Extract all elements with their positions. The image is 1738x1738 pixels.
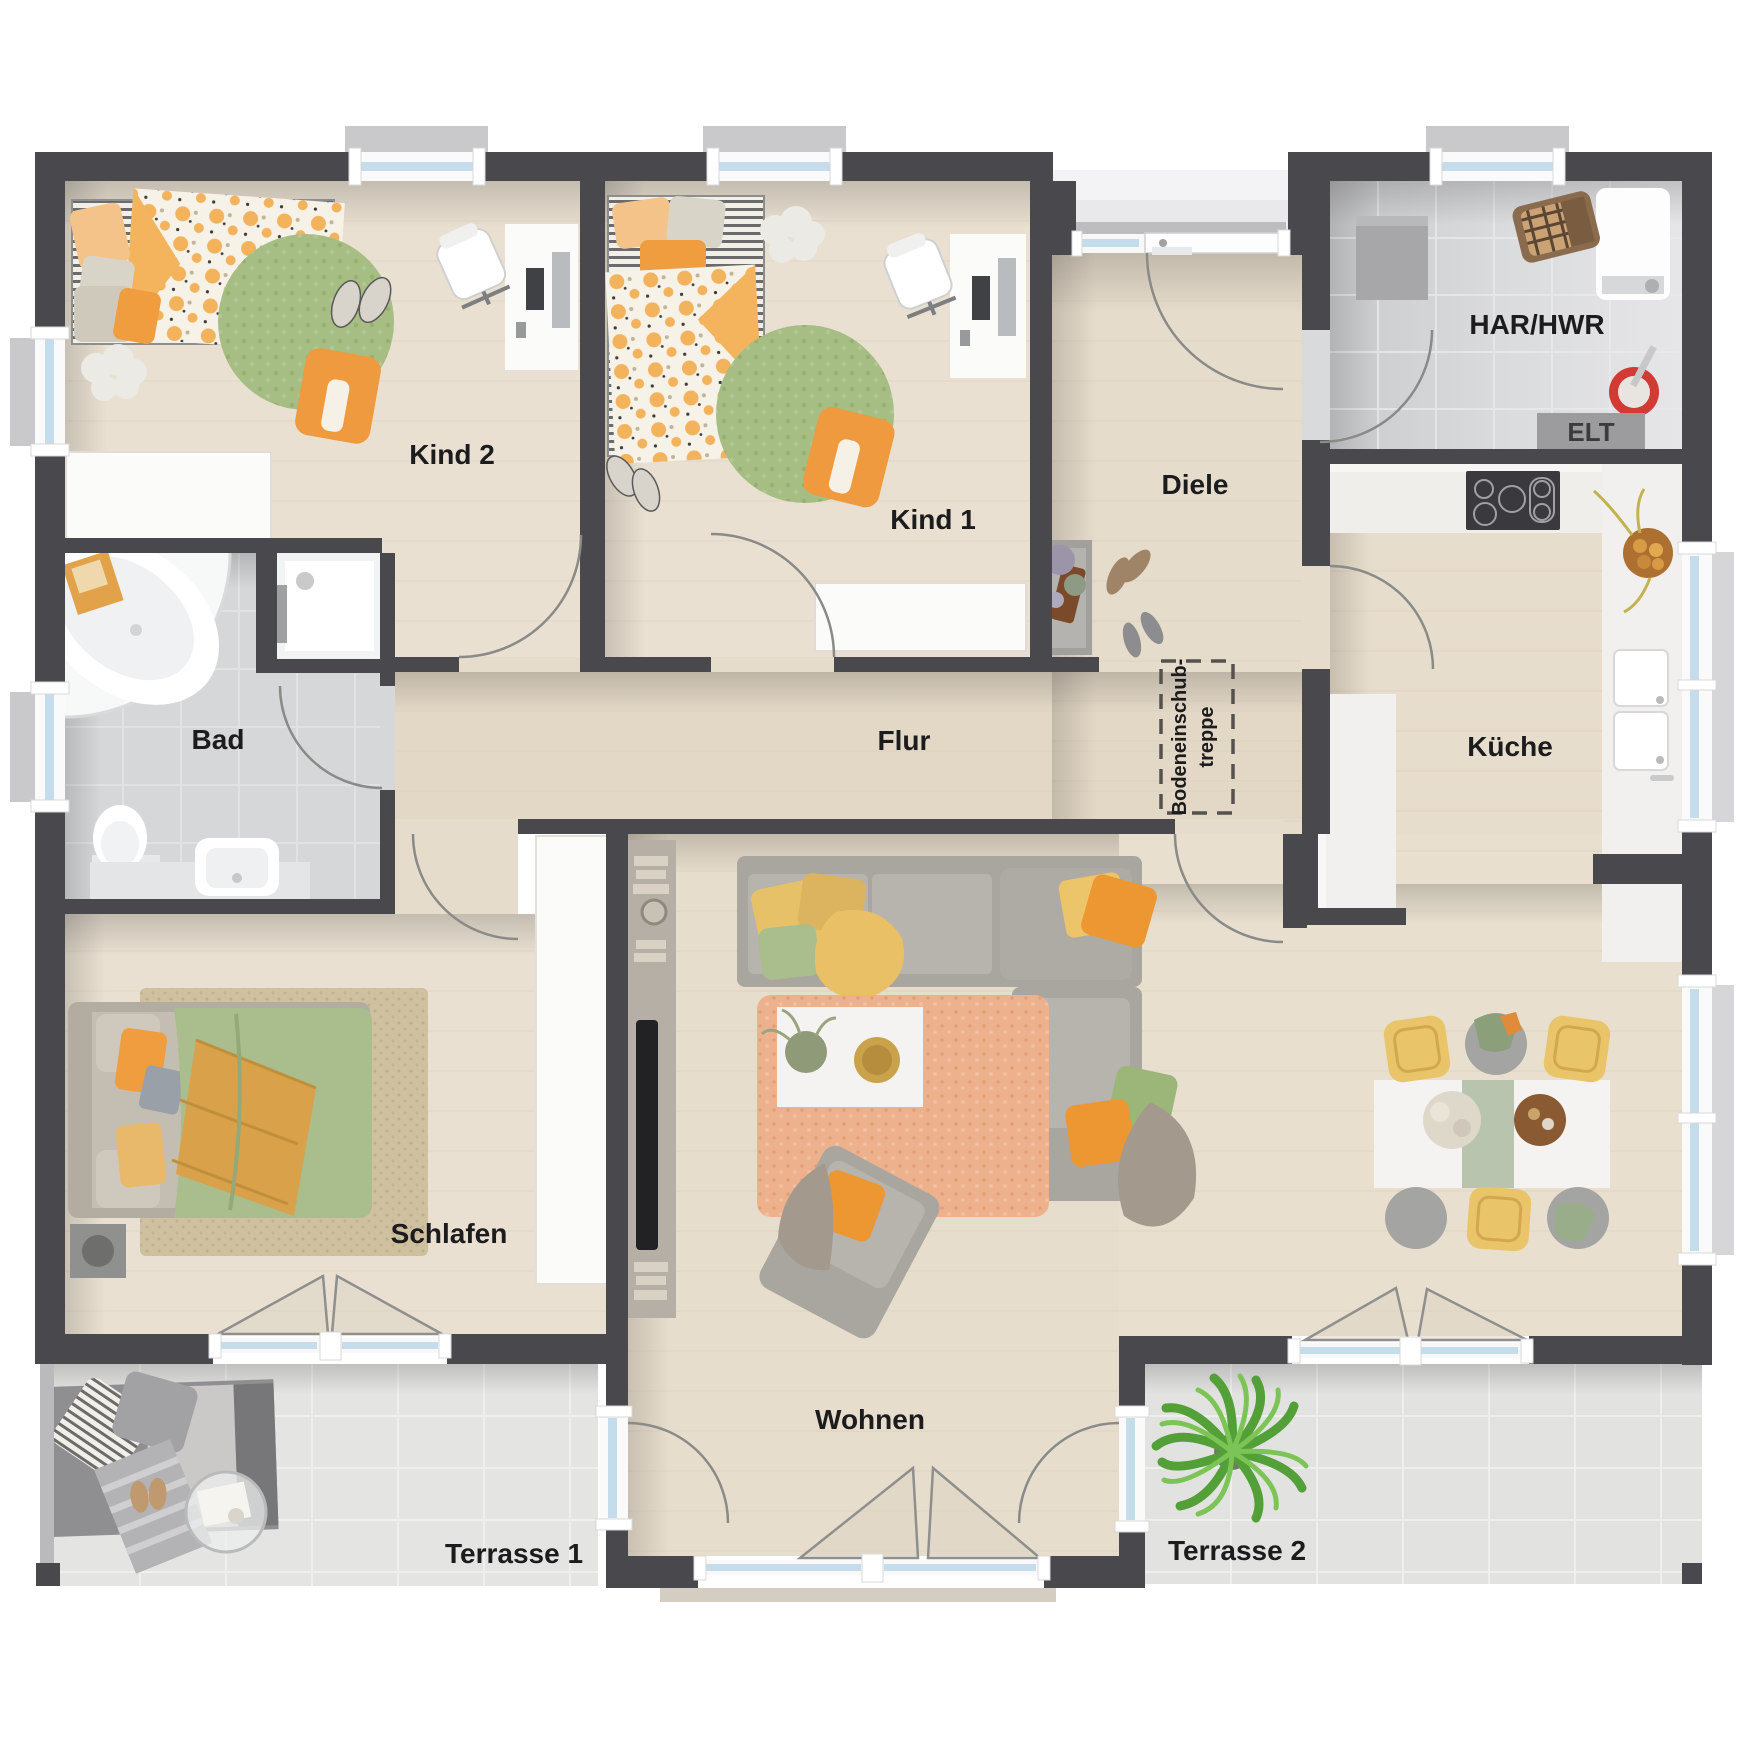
svg-text:ELT: ELT: [1567, 417, 1614, 447]
svg-text:Küche: Küche: [1467, 731, 1553, 762]
svg-text:Schlafen: Schlafen: [391, 1218, 508, 1249]
svg-text:HAR/HWR: HAR/HWR: [1469, 309, 1604, 340]
svg-text:Terrasse 2: Terrasse 2: [1168, 1535, 1306, 1566]
svg-text:Kind 1: Kind 1: [890, 504, 976, 535]
svg-text:treppe: treppe: [1196, 706, 1218, 767]
svg-text:Bodeneinschub-: Bodeneinschub-: [1169, 659, 1191, 816]
svg-text:Flur: Flur: [878, 725, 931, 756]
svg-text:Terrasse 1: Terrasse 1: [445, 1538, 583, 1569]
svg-text:Diele: Diele: [1162, 469, 1229, 500]
svg-text:Bad: Bad: [192, 724, 245, 755]
svg-text:Wohnen: Wohnen: [815, 1404, 925, 1435]
svg-text:Kind 2: Kind 2: [409, 439, 495, 470]
